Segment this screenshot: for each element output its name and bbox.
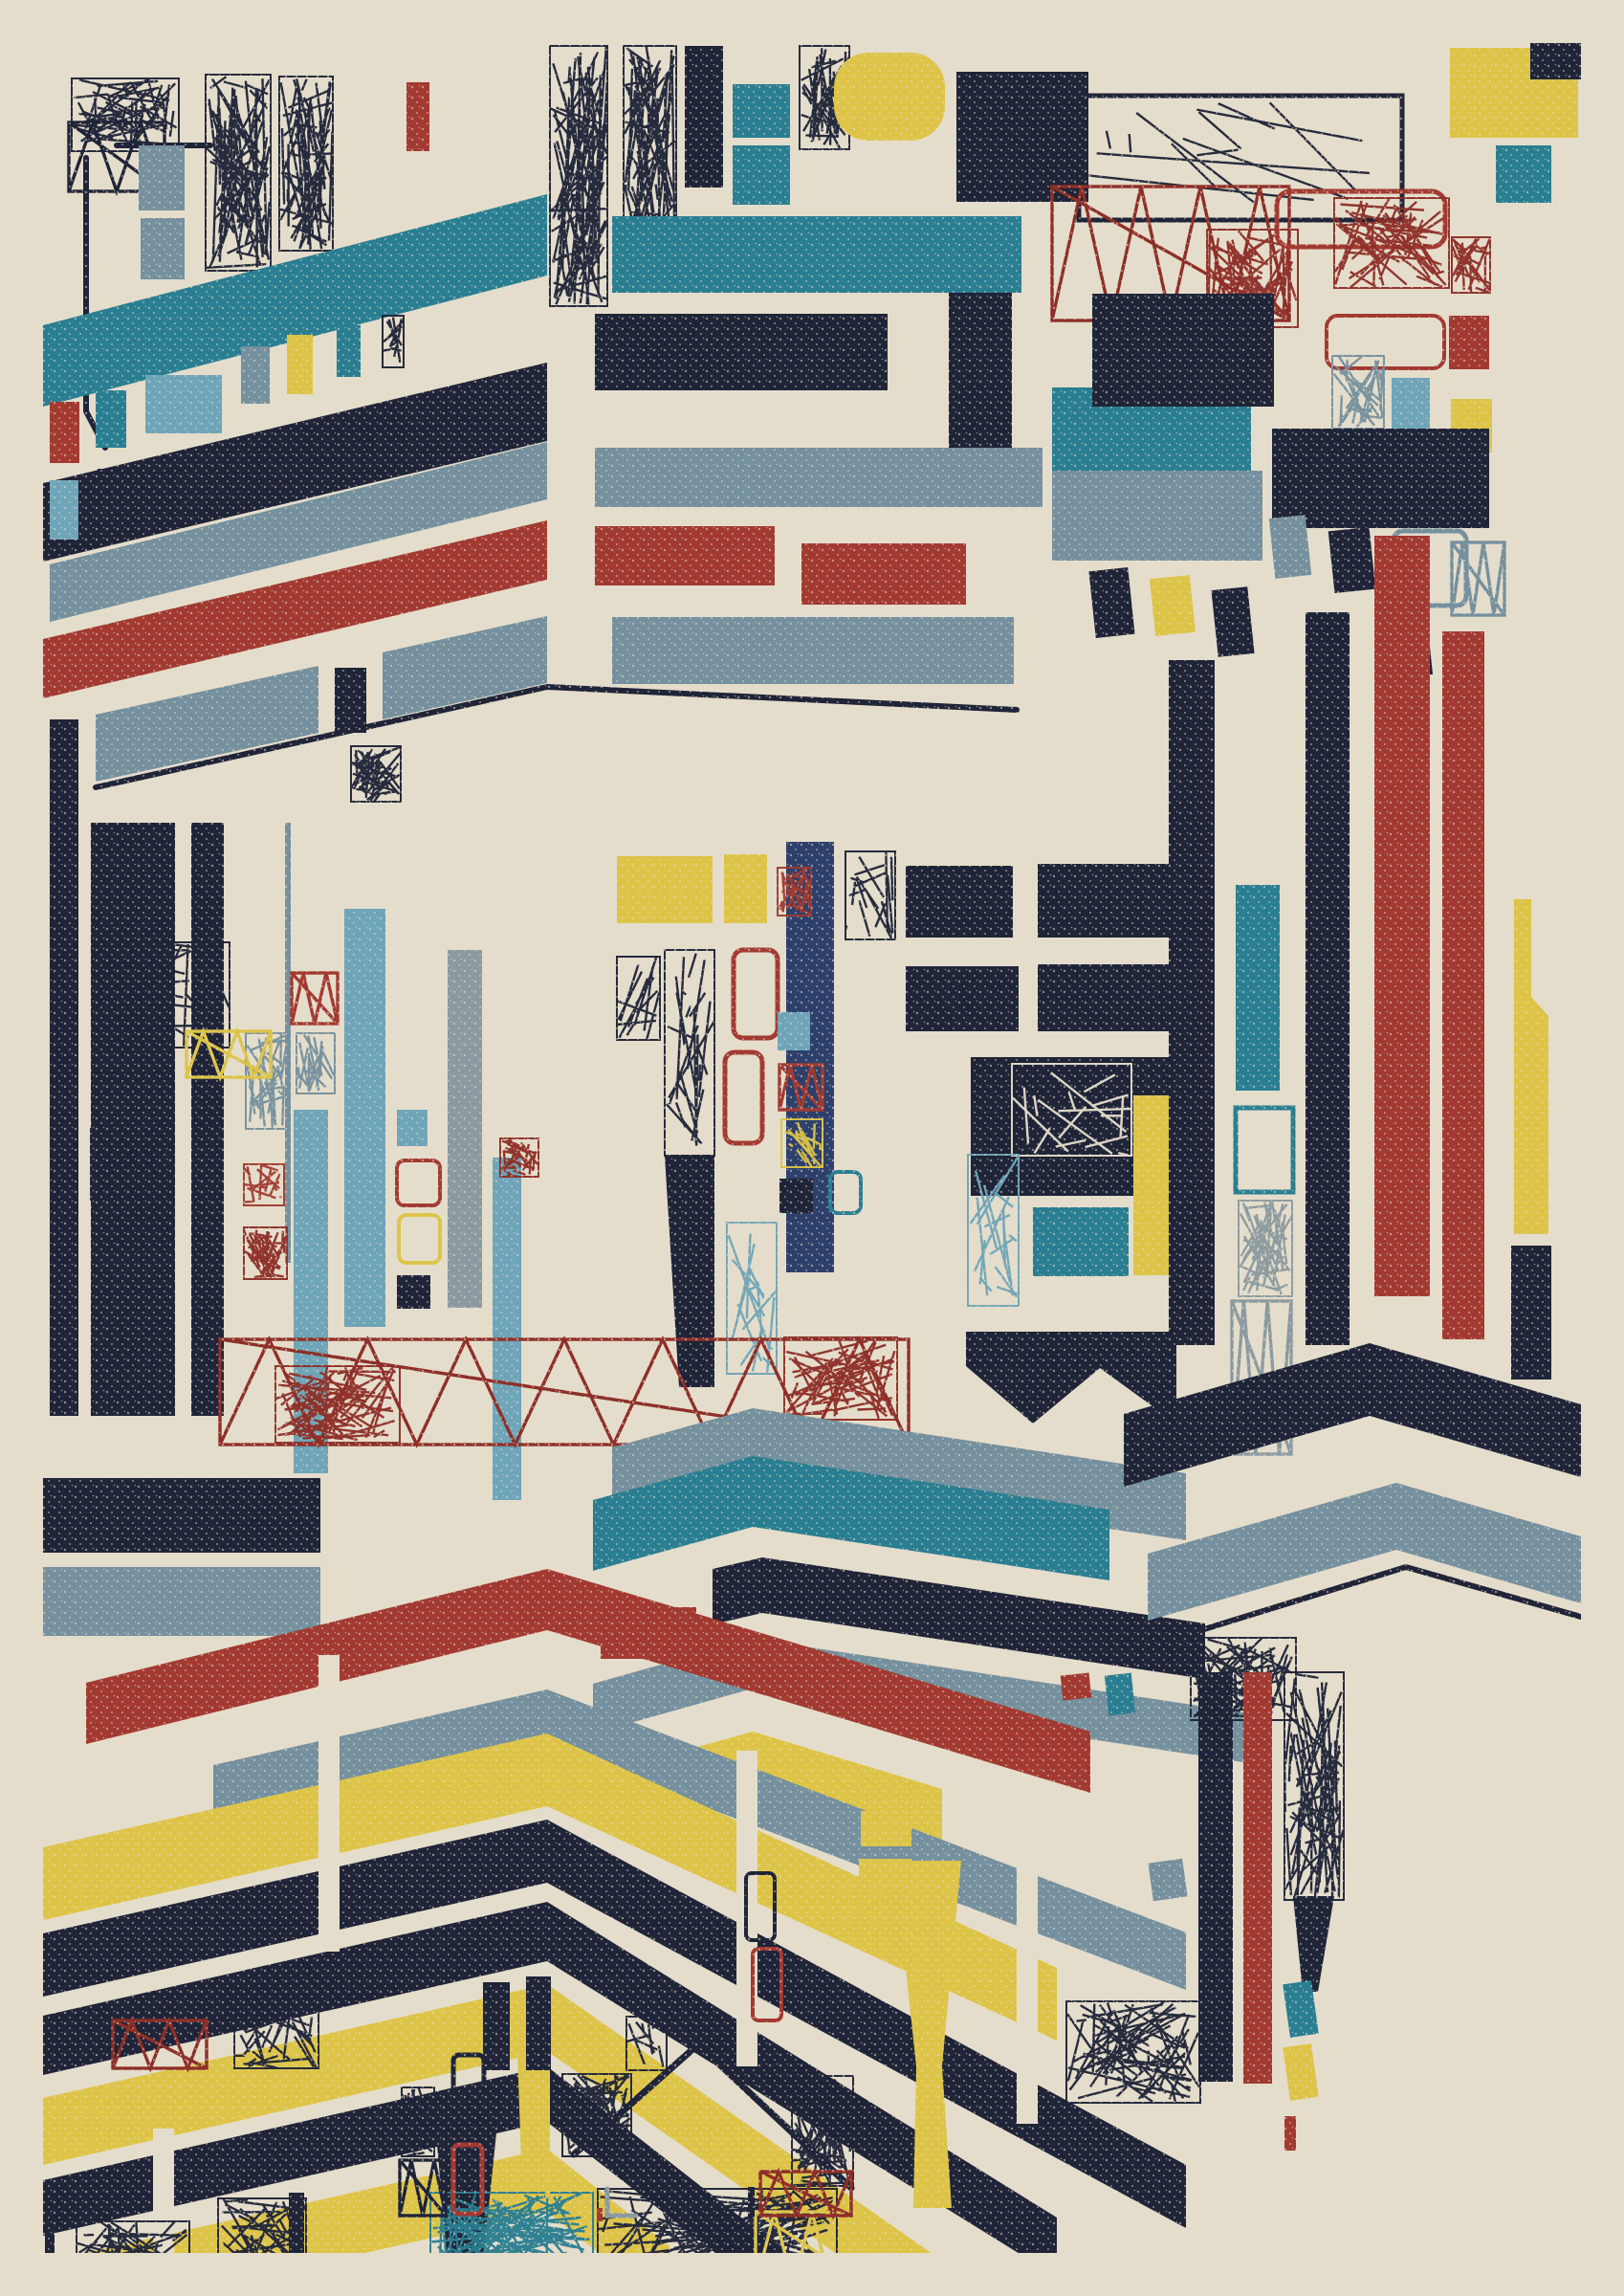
abstract-geometric-poster bbox=[0, 0, 1624, 2296]
print-speckle-texture bbox=[43, 43, 1581, 2253]
artwork-canvas bbox=[0, 0, 1624, 2296]
